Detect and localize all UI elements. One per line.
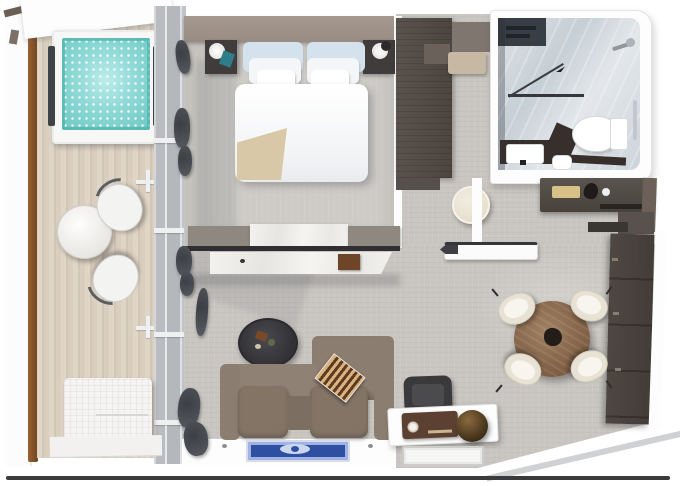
wardrobe-shelf — [424, 44, 450, 64]
shower-head — [626, 38, 635, 47]
divider-end-panel-right — [348, 226, 400, 246]
divider-marble-counter — [250, 224, 348, 246]
wall-fitting-dot — [222, 444, 227, 448]
glass-crossbar — [154, 332, 186, 337]
cabinet-top-bar — [588, 222, 628, 232]
closet-lower-unit — [396, 178, 440, 190]
plan-baseline — [6, 476, 670, 480]
sun-lounger — [64, 378, 152, 440]
wooden-box — [338, 254, 360, 270]
bath-shelf — [506, 34, 530, 38]
decor-sphere — [456, 410, 488, 442]
partition-hinge — [146, 316, 150, 338]
entry-door — [444, 242, 538, 260]
divider-shadow — [188, 274, 400, 286]
serving-tray — [552, 186, 580, 198]
cabinet-handle — [615, 368, 621, 371]
closet-bench — [448, 52, 486, 74]
glass-crossbar — [154, 228, 186, 233]
entry-wall — [472, 178, 482, 252]
wall-fitting-dot — [368, 444, 373, 448]
whirlpool-water — [62, 38, 150, 130]
floor-tray — [402, 446, 484, 466]
bath-shelf — [506, 26, 536, 30]
cabinet-handle — [612, 258, 618, 261]
radio-dial — [407, 421, 419, 433]
cabinet-handle — [613, 312, 619, 315]
towel-bar — [633, 100, 637, 140]
bathroom-dark-wall — [498, 18, 546, 46]
soap-dish — [552, 155, 572, 170]
divider-end-panel-left — [188, 226, 250, 246]
sink-faucet — [520, 160, 526, 165]
rug-medallion-center — [291, 446, 299, 452]
closet-upper-cabinet — [452, 22, 492, 52]
tub-side-slat — [48, 46, 55, 126]
divider-marble-shelf — [210, 252, 392, 274]
sofa-arm-left — [220, 364, 240, 440]
lounger-base-board — [50, 435, 162, 458]
curtain — [178, 146, 192, 176]
bedroom-headboard-wall — [184, 16, 402, 42]
sofa-center-console — [286, 396, 312, 430]
floor-shadow — [196, 60, 236, 230]
curtain — [174, 108, 190, 148]
curtain — [180, 272, 194, 296]
desk-chair-seat — [412, 384, 444, 406]
lamp-shade-dark — [381, 41, 391, 51]
suite-floor-plan — [0, 0, 680, 486]
sofa — [220, 334, 394, 442]
shelf-decor-dot — [240, 259, 245, 263]
entry-floor — [482, 180, 534, 246]
divider-edge-rail — [186, 246, 400, 251]
sofa-seat-cushion — [238, 386, 288, 438]
toilet-tank — [610, 118, 628, 150]
shelving-cabinet — [606, 233, 655, 424]
lounger-seam — [96, 414, 148, 416]
cup — [602, 188, 610, 196]
wardrobe — [396, 18, 452, 178]
shower-glass-edge — [508, 94, 584, 97]
table-centerpiece — [544, 328, 562, 346]
partition-hinge — [146, 170, 150, 192]
